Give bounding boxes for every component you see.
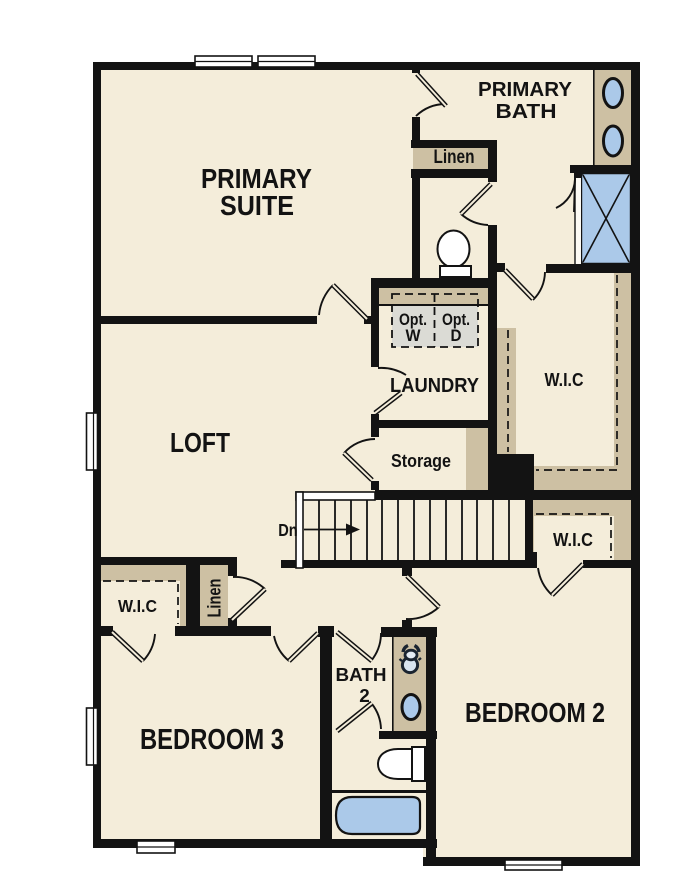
- svg-text:W: W: [406, 327, 421, 345]
- svg-text:2: 2: [359, 685, 370, 706]
- svg-text:LAUNDRY: LAUNDRY: [390, 374, 479, 397]
- svg-text:W.I.C: W.I.C: [118, 596, 157, 616]
- svg-text:Dn: Dn: [278, 520, 298, 540]
- svg-text:LOFT: LOFT: [170, 427, 230, 458]
- svg-text:SUITE: SUITE: [220, 190, 294, 221]
- svg-text:W.I.C: W.I.C: [545, 370, 584, 390]
- svg-text:BATH: BATH: [496, 100, 557, 123]
- svg-text:D: D: [451, 327, 462, 345]
- svg-text:BATH: BATH: [336, 664, 387, 685]
- svg-text:BEDROOM 3: BEDROOM 3: [140, 724, 284, 756]
- svg-text:PRIMARY: PRIMARY: [478, 78, 572, 101]
- svg-text:Linen: Linen: [434, 147, 475, 168]
- svg-text:W.I.C: W.I.C: [553, 530, 593, 550]
- svg-text:BEDROOM 2: BEDROOM 2: [465, 697, 605, 728]
- svg-text:Storage: Storage: [391, 451, 451, 471]
- svg-text:Linen: Linen: [204, 579, 225, 618]
